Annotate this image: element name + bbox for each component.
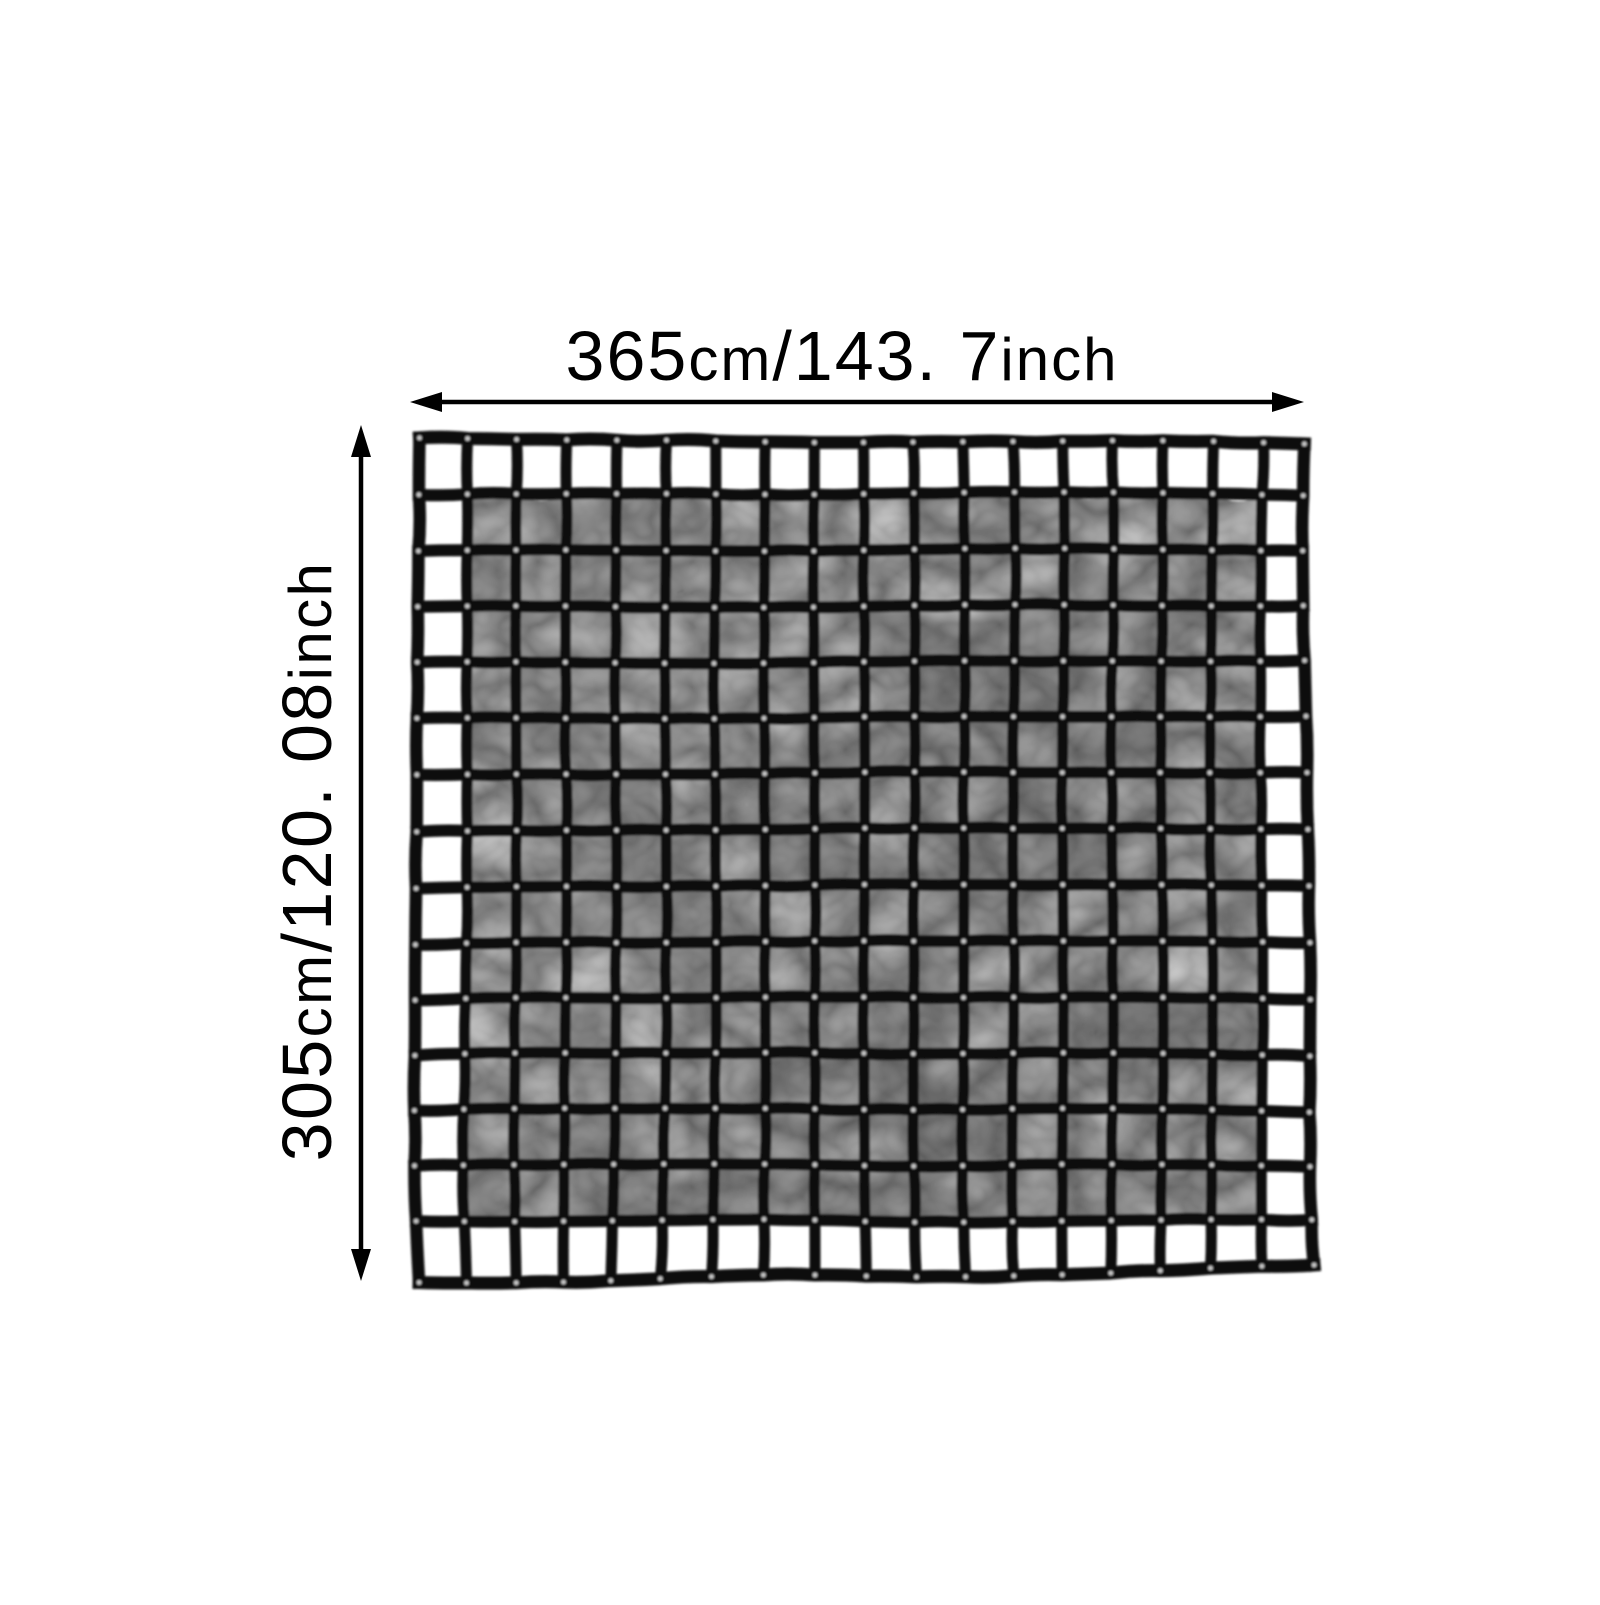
svg-text:305cm/120. 08inch: 305cm/120. 08inch: [268, 561, 346, 1162]
svg-text:365cm/143. 7inch: 365cm/143. 7inch: [566, 317, 1119, 395]
